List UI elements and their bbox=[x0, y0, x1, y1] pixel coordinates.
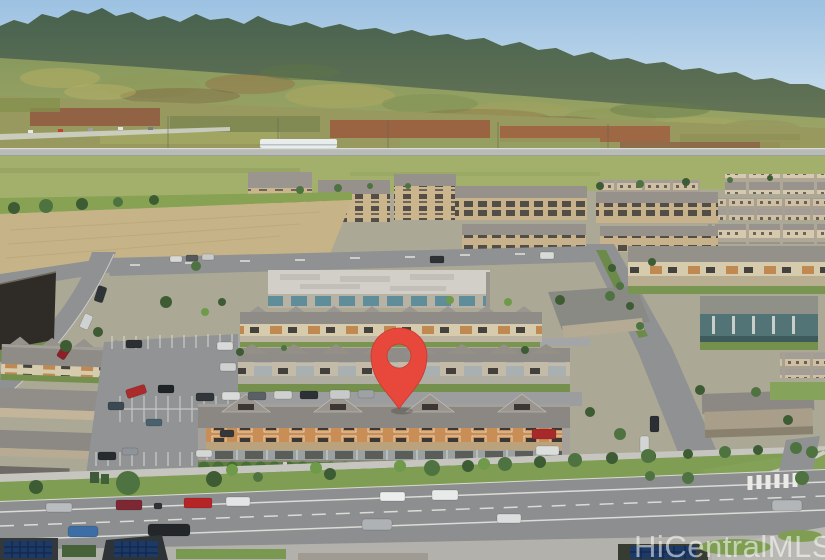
listing-photo: HiCentralMLS bbox=[0, 0, 825, 560]
solar-roof bbox=[0, 538, 58, 560]
utility-box bbox=[101, 474, 109, 484]
teal-building bbox=[700, 296, 818, 350]
amenity-building bbox=[268, 270, 490, 308]
watermark-text: HiCentralMLS bbox=[634, 529, 825, 560]
utility-box bbox=[90, 472, 99, 483]
train bbox=[260, 139, 337, 148]
